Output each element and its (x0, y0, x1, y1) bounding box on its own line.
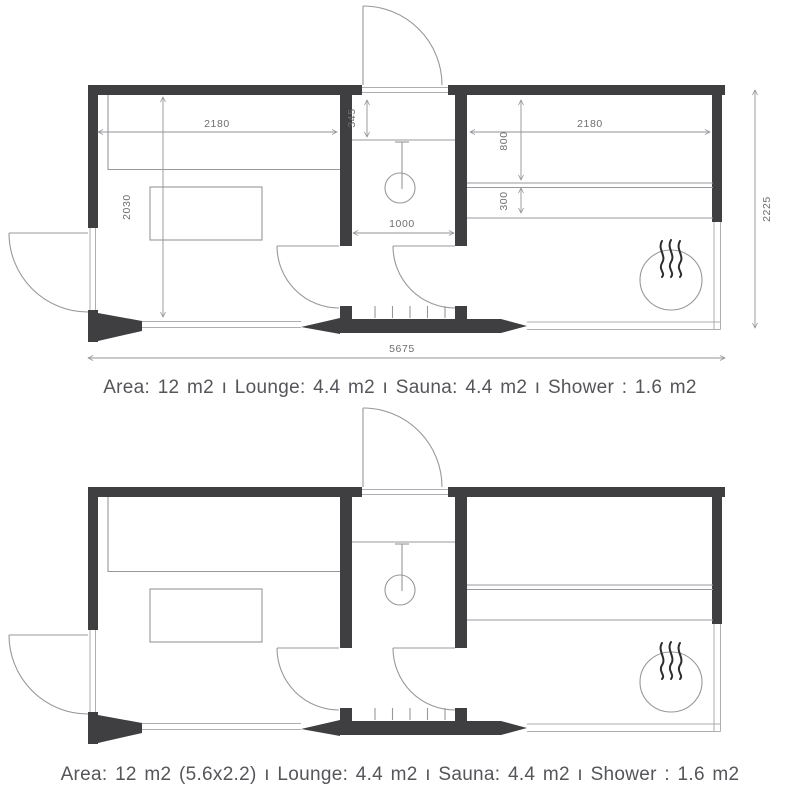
dim-label-sauna-width: 2180 (577, 118, 603, 130)
dim-label-bench-step: 300 (498, 191, 510, 210)
dim-label-lounge-width: 2180 (204, 118, 230, 130)
floor-plan-bottom (9, 408, 725, 744)
floor-plan-canvas: 2180 2030 345 1000 2180 800 300 2225 567… (0, 0, 800, 800)
dim-label-shower-width: 1000 (389, 218, 415, 230)
dim-label-lounge-depth: 2030 (121, 194, 133, 220)
dim-label-overall-depth: 2225 (761, 196, 773, 222)
plan-caption-bottom: Area: 12 m2 (5.6x2.2) ı Lounge: 4.4 m2 ı… (0, 764, 800, 786)
dim-label-bench-depth: 800 (498, 131, 510, 150)
plan-caption-top: Area: 12 m2 ı Lounge: 4.4 m2 ı Sauna: 4.… (0, 377, 800, 399)
dimension-annotations: 2180 2030 345 1000 2180 800 300 2225 567… (88, 90, 773, 358)
floor-plan-top (9, 6, 725, 342)
dim-label-shower-shelf: 345 (346, 108, 358, 127)
dim-label-overall-width: 5675 (389, 343, 415, 355)
